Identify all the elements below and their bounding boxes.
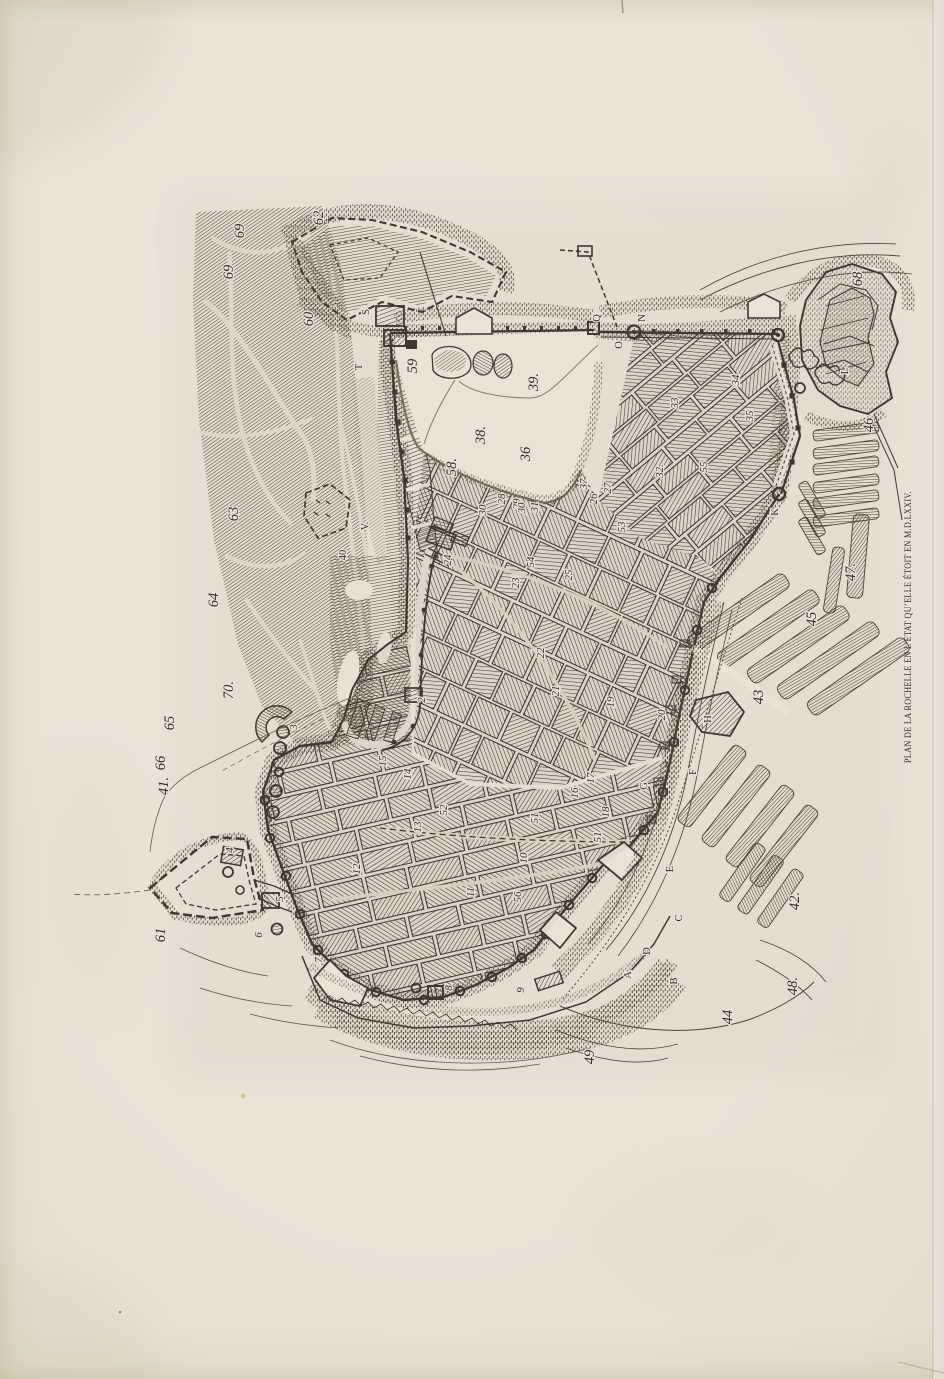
svg-text:5: 5 [274, 896, 286, 902]
svg-text:69: 69 [221, 264, 237, 279]
svg-text:12: 12 [351, 863, 363, 875]
svg-text:N: N [637, 314, 648, 322]
svg-text:14: 14 [402, 768, 414, 780]
svg-text:8: 8 [443, 985, 455, 991]
svg-text:18: 18 [600, 806, 612, 818]
svg-text:L: L [840, 368, 851, 374]
svg-text:41.: 41. [156, 777, 172, 795]
svg-text:H: H [703, 715, 714, 723]
svg-text:28: 28 [496, 493, 508, 505]
svg-text:69: 69 [232, 223, 248, 238]
svg-text:D: D [642, 947, 653, 955]
svg-text:11: 11 [465, 887, 477, 897]
svg-text:E: E [665, 866, 676, 872]
svg-text:O: O [614, 341, 625, 349]
svg-text:6: 6 [253, 932, 265, 938]
svg-text:26: 26 [588, 493, 600, 505]
svg-text:S: S [361, 309, 372, 315]
svg-text:30: 30 [516, 502, 528, 515]
svg-text:43: 43 [751, 690, 767, 705]
svg-text:24: 24 [442, 554, 454, 566]
svg-text:32.: 32. [654, 464, 666, 479]
svg-text:30: 30 [477, 504, 489, 517]
svg-text:37: 37 [578, 478, 590, 491]
svg-text:G: G [639, 782, 650, 790]
svg-text:45: 45 [804, 612, 820, 627]
svg-text:58.: 58. [444, 458, 460, 476]
svg-text:70.: 70. [221, 681, 237, 699]
svg-text:7: 7 [313, 957, 325, 963]
svg-text:42.: 42. [787, 892, 803, 910]
svg-text:9: 9 [515, 987, 527, 993]
svg-text:39.: 39. [526, 373, 542, 392]
svg-text:20: 20 [656, 709, 668, 721]
svg-text:Q: Q [592, 314, 603, 322]
svg-text:T: T [354, 363, 365, 370]
svg-text:13: 13 [412, 821, 424, 833]
svg-text:C: C [674, 914, 685, 921]
svg-text:38.: 38. [473, 426, 489, 445]
svg-text:66: 66 [153, 755, 169, 770]
svg-text:44: 44 [720, 1010, 736, 1025]
svg-text:48.: 48. [785, 977, 801, 995]
svg-text:A: A [623, 971, 634, 979]
svg-text:60: 60 [301, 311, 317, 326]
svg-text:31: 31 [529, 502, 541, 514]
svg-text:23: 23 [510, 577, 522, 589]
svg-text:40: 40 [338, 550, 349, 561]
svg-text:19: 19 [605, 696, 617, 708]
svg-text:55: 55 [698, 461, 710, 473]
svg-text:27: 27 [602, 482, 614, 494]
svg-text:PLAN DE LA ROCHELLE EN L’ÉTAT: PLAN DE LA ROCHELLE EN L’ÉTAT QU’ELLE ÉT… [903, 491, 913, 763]
svg-text:16: 16 [569, 787, 581, 799]
svg-text:54: 54 [525, 556, 537, 568]
svg-text:B: B [669, 977, 680, 984]
svg-text:68: 68 [850, 271, 866, 286]
svg-text:52: 52 [438, 804, 450, 816]
svg-text:63: 63 [226, 507, 242, 522]
svg-text:33: 33 [669, 397, 681, 410]
svg-text:56: 56 [512, 891, 524, 903]
svg-text:64: 64 [206, 593, 222, 608]
svg-text:59: 59 [405, 358, 421, 373]
svg-text:34: 34 [730, 374, 742, 387]
svg-text:53: 53 [616, 521, 628, 533]
svg-text:49: 49 [582, 1049, 598, 1064]
svg-text:2: 2 [416, 697, 428, 703]
svg-text:22: 22 [535, 647, 547, 659]
svg-text:51: 51 [529, 813, 541, 824]
svg-text:21: 21 [550, 686, 562, 697]
svg-text:61: 61 [153, 928, 169, 943]
svg-text:51: 51 [592, 832, 604, 843]
svg-text:4: 4 [224, 847, 236, 853]
svg-text:K: K [770, 508, 781, 516]
svg-text:25: 25 [563, 569, 575, 581]
svg-text:F: F [688, 769, 699, 775]
svg-text:36: 36 [518, 446, 534, 462]
svg-text:V.: V. [360, 522, 371, 531]
svg-text:3: 3 [288, 724, 300, 731]
svg-text:17: 17 [585, 772, 597, 784]
svg-text:62: 62 [311, 211, 327, 226]
svg-text:35: 35 [744, 410, 756, 423]
svg-text:65: 65 [162, 716, 178, 731]
svg-text:15: 15 [377, 755, 389, 767]
svg-text:10: 10 [518, 852, 530, 864]
svg-text:47.: 47. [843, 563, 859, 581]
svg-text:46: 46 [861, 417, 877, 432]
